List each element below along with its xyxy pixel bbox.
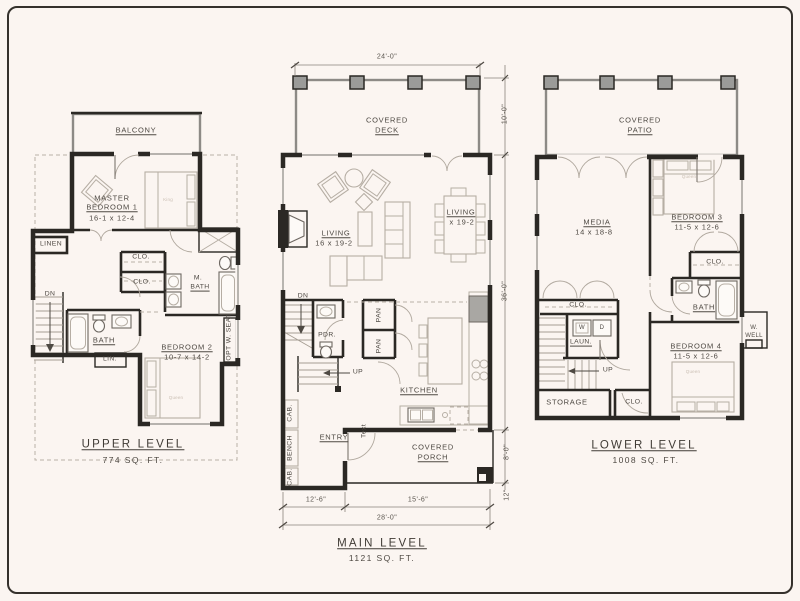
deck-label-1: COVERED <box>366 116 408 124</box>
main-up-label: UP <box>353 370 363 377</box>
king-bed-label: King <box>163 198 173 203</box>
patio-label-2: PATIO <box>628 126 653 134</box>
cabinet-label-a: CAB. <box>288 404 295 421</box>
bedroom2-bed <box>145 358 200 418</box>
cabinet-label-b: CAB. <box>288 468 295 485</box>
upper-roof-outline <box>35 155 237 460</box>
text-note-label: Text <box>362 424 369 438</box>
media-label: MEDIA <box>583 218 610 226</box>
kitchen-island <box>428 318 462 384</box>
deck-posts <box>293 76 480 89</box>
master-bedroom-dims: 16-1 x 12-4 <box>89 214 135 222</box>
dim-10-0: 10'-0" <box>502 104 509 124</box>
lin-label: LIN. <box>103 357 117 364</box>
lower-bath-label: BATH <box>693 303 715 311</box>
bedroom2-dims: 10-7 x 14-2 <box>164 353 210 361</box>
entry-label: ENTRY <box>320 433 349 441</box>
dim-15-6: 15'-6" <box>408 497 428 504</box>
dim-36-0: 36'-0" <box>502 281 509 301</box>
dryer-label: D <box>600 325 605 331</box>
upper-stairs <box>34 292 63 363</box>
powder-room <box>283 300 343 358</box>
window-seat-label: OPT W. SEAT <box>227 313 234 360</box>
pantry-label-b: PAN <box>377 339 384 354</box>
patio-posts <box>544 76 735 89</box>
washer-label: W <box>579 325 585 331</box>
dim-24-0: 24'-0" <box>377 54 397 61</box>
dim-28-0: 28'-0" <box>377 515 397 522</box>
master-bedroom-label-1: MASTER <box>94 194 129 202</box>
bedroom3-bed <box>653 159 714 215</box>
powder-room-label: PDR. <box>318 333 336 340</box>
bottom-closet-label: CLO. <box>625 400 642 407</box>
pantries <box>363 300 412 358</box>
queen-bed2-label: Queen <box>169 396 184 401</box>
living-label: LIVING <box>322 229 351 237</box>
main-level-area: 1121 SQ. FT. <box>349 554 415 563</box>
bath-label: BATH <box>93 336 115 344</box>
dim-8-0: 8'-0" <box>504 444 511 460</box>
lower-up-label: UP <box>603 368 613 375</box>
balcony-label: BALCONY <box>116 126 157 134</box>
dim-12-6: 12'-6" <box>306 497 326 504</box>
bedroom3-label: BEDROOM 3 <box>671 213 722 221</box>
queen-bed4-label: Queen <box>686 370 701 375</box>
patio-label-1: COVERED <box>619 116 661 124</box>
bedroom4-bed <box>672 362 734 412</box>
laundry-label: LAUN. <box>570 340 592 347</box>
media-dims: 14 x 18-8 <box>575 228 613 236</box>
window-well-label-1: W. <box>750 325 758 331</box>
master-bath-label-2: BATH <box>190 285 209 292</box>
master-bath-label-1: M. <box>194 276 202 283</box>
bedroom3-closet-label: CLO. <box>706 260 723 267</box>
bedroom2-label: BEDROOM 2 <box>161 343 212 351</box>
down-label: DN <box>45 292 56 299</box>
kitchen-label: KITCHEN <box>400 386 438 394</box>
lower-level-area: 1008 SQ. FT. <box>613 456 680 465</box>
dining-dims: x 19-2 <box>449 218 474 226</box>
dining-label: LIVING <box>447 208 476 216</box>
lower-level-title: LOWER LEVEL <box>591 440 696 452</box>
window-well-label-2: WELL <box>745 333 763 339</box>
bedroom2-bath <box>67 310 140 353</box>
main-level-title: MAIN LEVEL <box>337 538 427 550</box>
linen-label: LINEN <box>40 242 62 249</box>
bedroom4-label: BEDROOM 4 <box>670 342 721 350</box>
pantry-label-a: PAN <box>377 308 384 323</box>
bedroom3-dims: 11-5 x 12-6 <box>674 223 719 231</box>
porch-label-2: PORCH <box>418 453 449 461</box>
master-bedroom-label-2: BEDROOM 1 <box>86 203 137 211</box>
deck-label-2: DECK <box>375 126 399 134</box>
upper-level-area: 774 SQ. FT. <box>103 456 164 465</box>
bench-label: BENCH <box>288 435 295 461</box>
storage-label: STORAGE <box>546 398 587 406</box>
bedroom4-dims: 11-5 x 12-6 <box>673 352 718 360</box>
closet-label-a: CLO. <box>132 255 149 262</box>
queen-bed3-label: Queen <box>682 175 697 180</box>
floorplan-drawing <box>0 0 800 601</box>
floor-plan-sheet: BALCONY MASTER BEDROOM 1 16-1 x 12-4 LIN… <box>0 0 800 601</box>
fireplace <box>278 210 307 248</box>
living-dims: 16 x 19-2 <box>315 239 353 247</box>
hall-closet-label: CLO. <box>569 303 586 310</box>
dim-12in: 12" <box>504 489 511 500</box>
porch-label-1: COVERED <box>412 443 454 451</box>
kitchen-fixtures <box>400 292 488 425</box>
upper-level-title: UPPER LEVEL <box>82 439 185 451</box>
main-down-label: DN <box>298 294 309 301</box>
closet-label-b: CLO. <box>133 280 150 287</box>
